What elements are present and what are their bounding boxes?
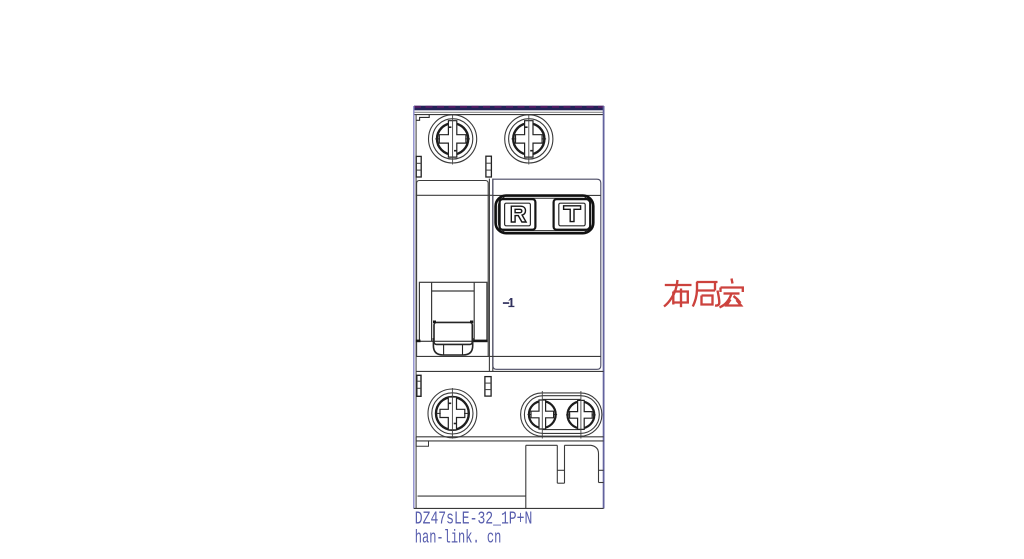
svg-text:han-link. cn: han-link. cn bbox=[415, 528, 502, 548]
svg-text:DZ47sLE-32_1P+N: DZ47sLE-32_1P+N bbox=[415, 510, 533, 530]
